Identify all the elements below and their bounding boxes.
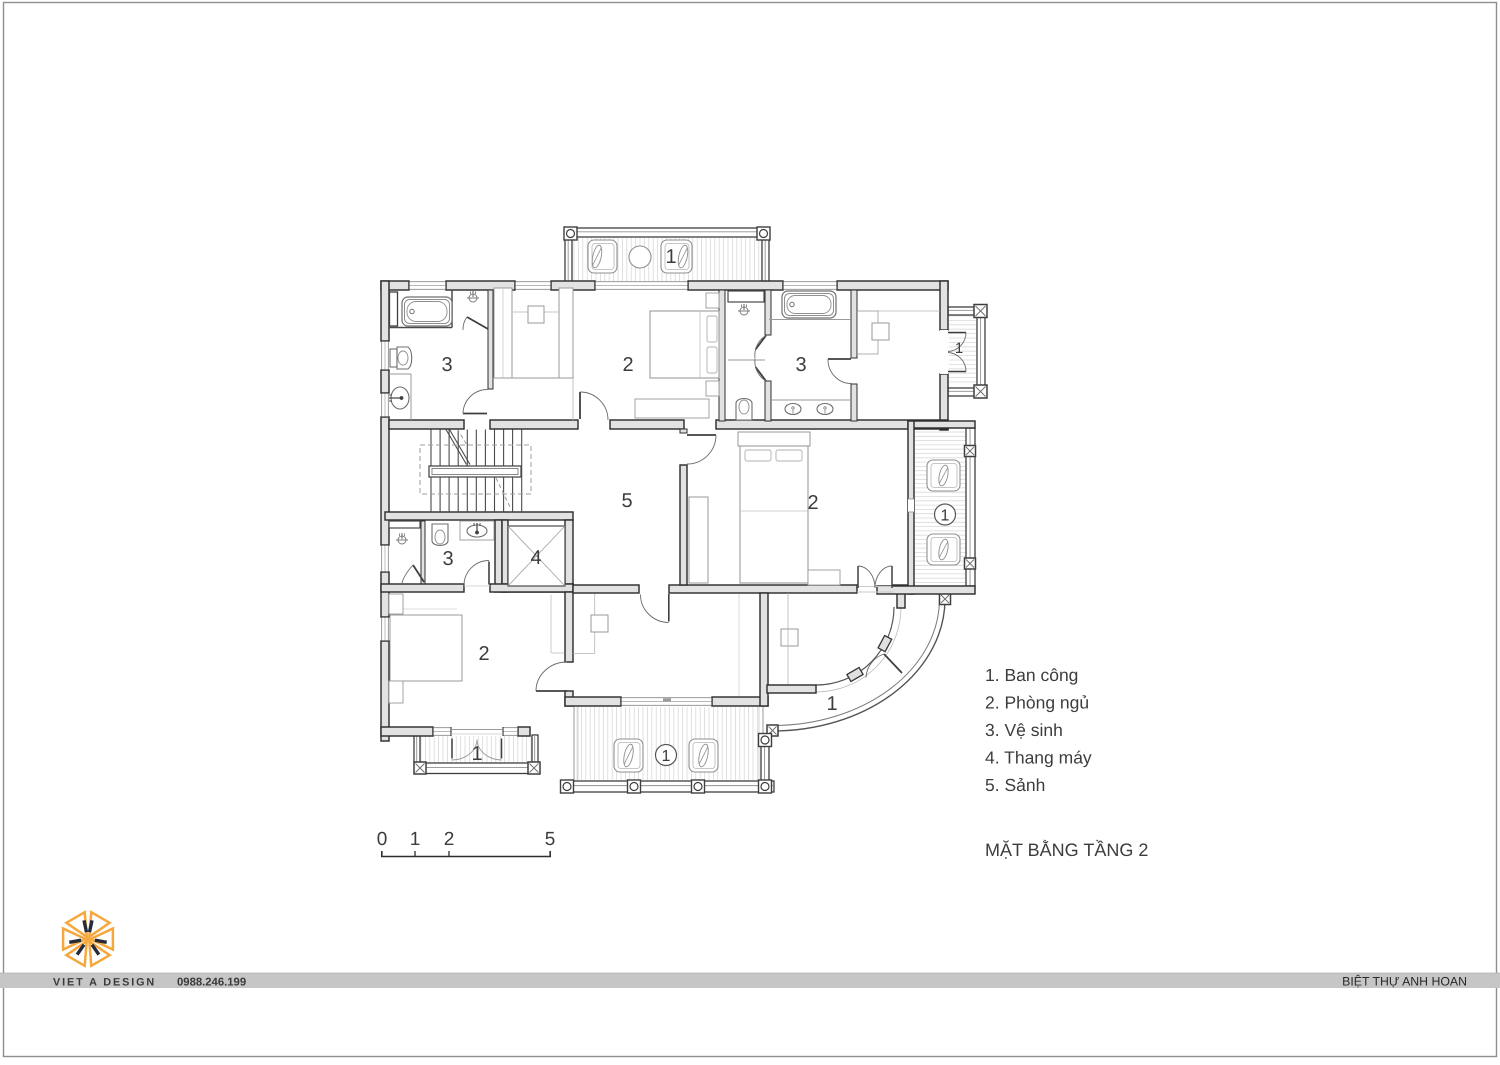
svg-text:4. Thang máy: 4. Thang máy — [985, 748, 1092, 768]
svg-text:VIET A DESIGN: VIET A DESIGN — [53, 977, 156, 989]
svg-text:0: 0 — [377, 829, 388, 850]
svg-text:3: 3 — [795, 354, 806, 376]
svg-text:2. Phòng ngủ: 2. Phòng ngủ — [985, 693, 1089, 713]
svg-text:2: 2 — [478, 643, 489, 665]
svg-text:1: 1 — [662, 748, 671, 765]
svg-text:0988.246.199: 0988.246.199 — [177, 977, 246, 989]
svg-text:2: 2 — [444, 829, 455, 850]
svg-text:BIỆT THỰ ANH HOAN: BIỆT THỰ ANH HOAN — [1342, 975, 1467, 989]
svg-text:MẶT BẰNG TẦNG 2: MẶT BẰNG TẦNG 2 — [985, 839, 1148, 860]
svg-text:2: 2 — [622, 354, 633, 376]
svg-text:1: 1 — [665, 246, 676, 268]
svg-text:1. Ban công: 1. Ban công — [985, 665, 1078, 685]
svg-text:2: 2 — [807, 492, 818, 514]
svg-text:1: 1 — [826, 693, 837, 715]
svg-text:5: 5 — [545, 829, 556, 850]
svg-text:5. Sảnh: 5. Sảnh — [985, 775, 1045, 795]
svg-text:5: 5 — [621, 490, 632, 512]
svg-text:1: 1 — [410, 829, 421, 850]
svg-text:3. Vệ sinh: 3. Vệ sinh — [985, 720, 1063, 740]
svg-text:1: 1 — [955, 340, 963, 357]
svg-text:1: 1 — [941, 508, 950, 525]
svg-text:3: 3 — [441, 354, 452, 376]
svg-text:3: 3 — [442, 548, 453, 570]
svg-text:1: 1 — [471, 743, 482, 765]
svg-text:4: 4 — [530, 547, 541, 569]
